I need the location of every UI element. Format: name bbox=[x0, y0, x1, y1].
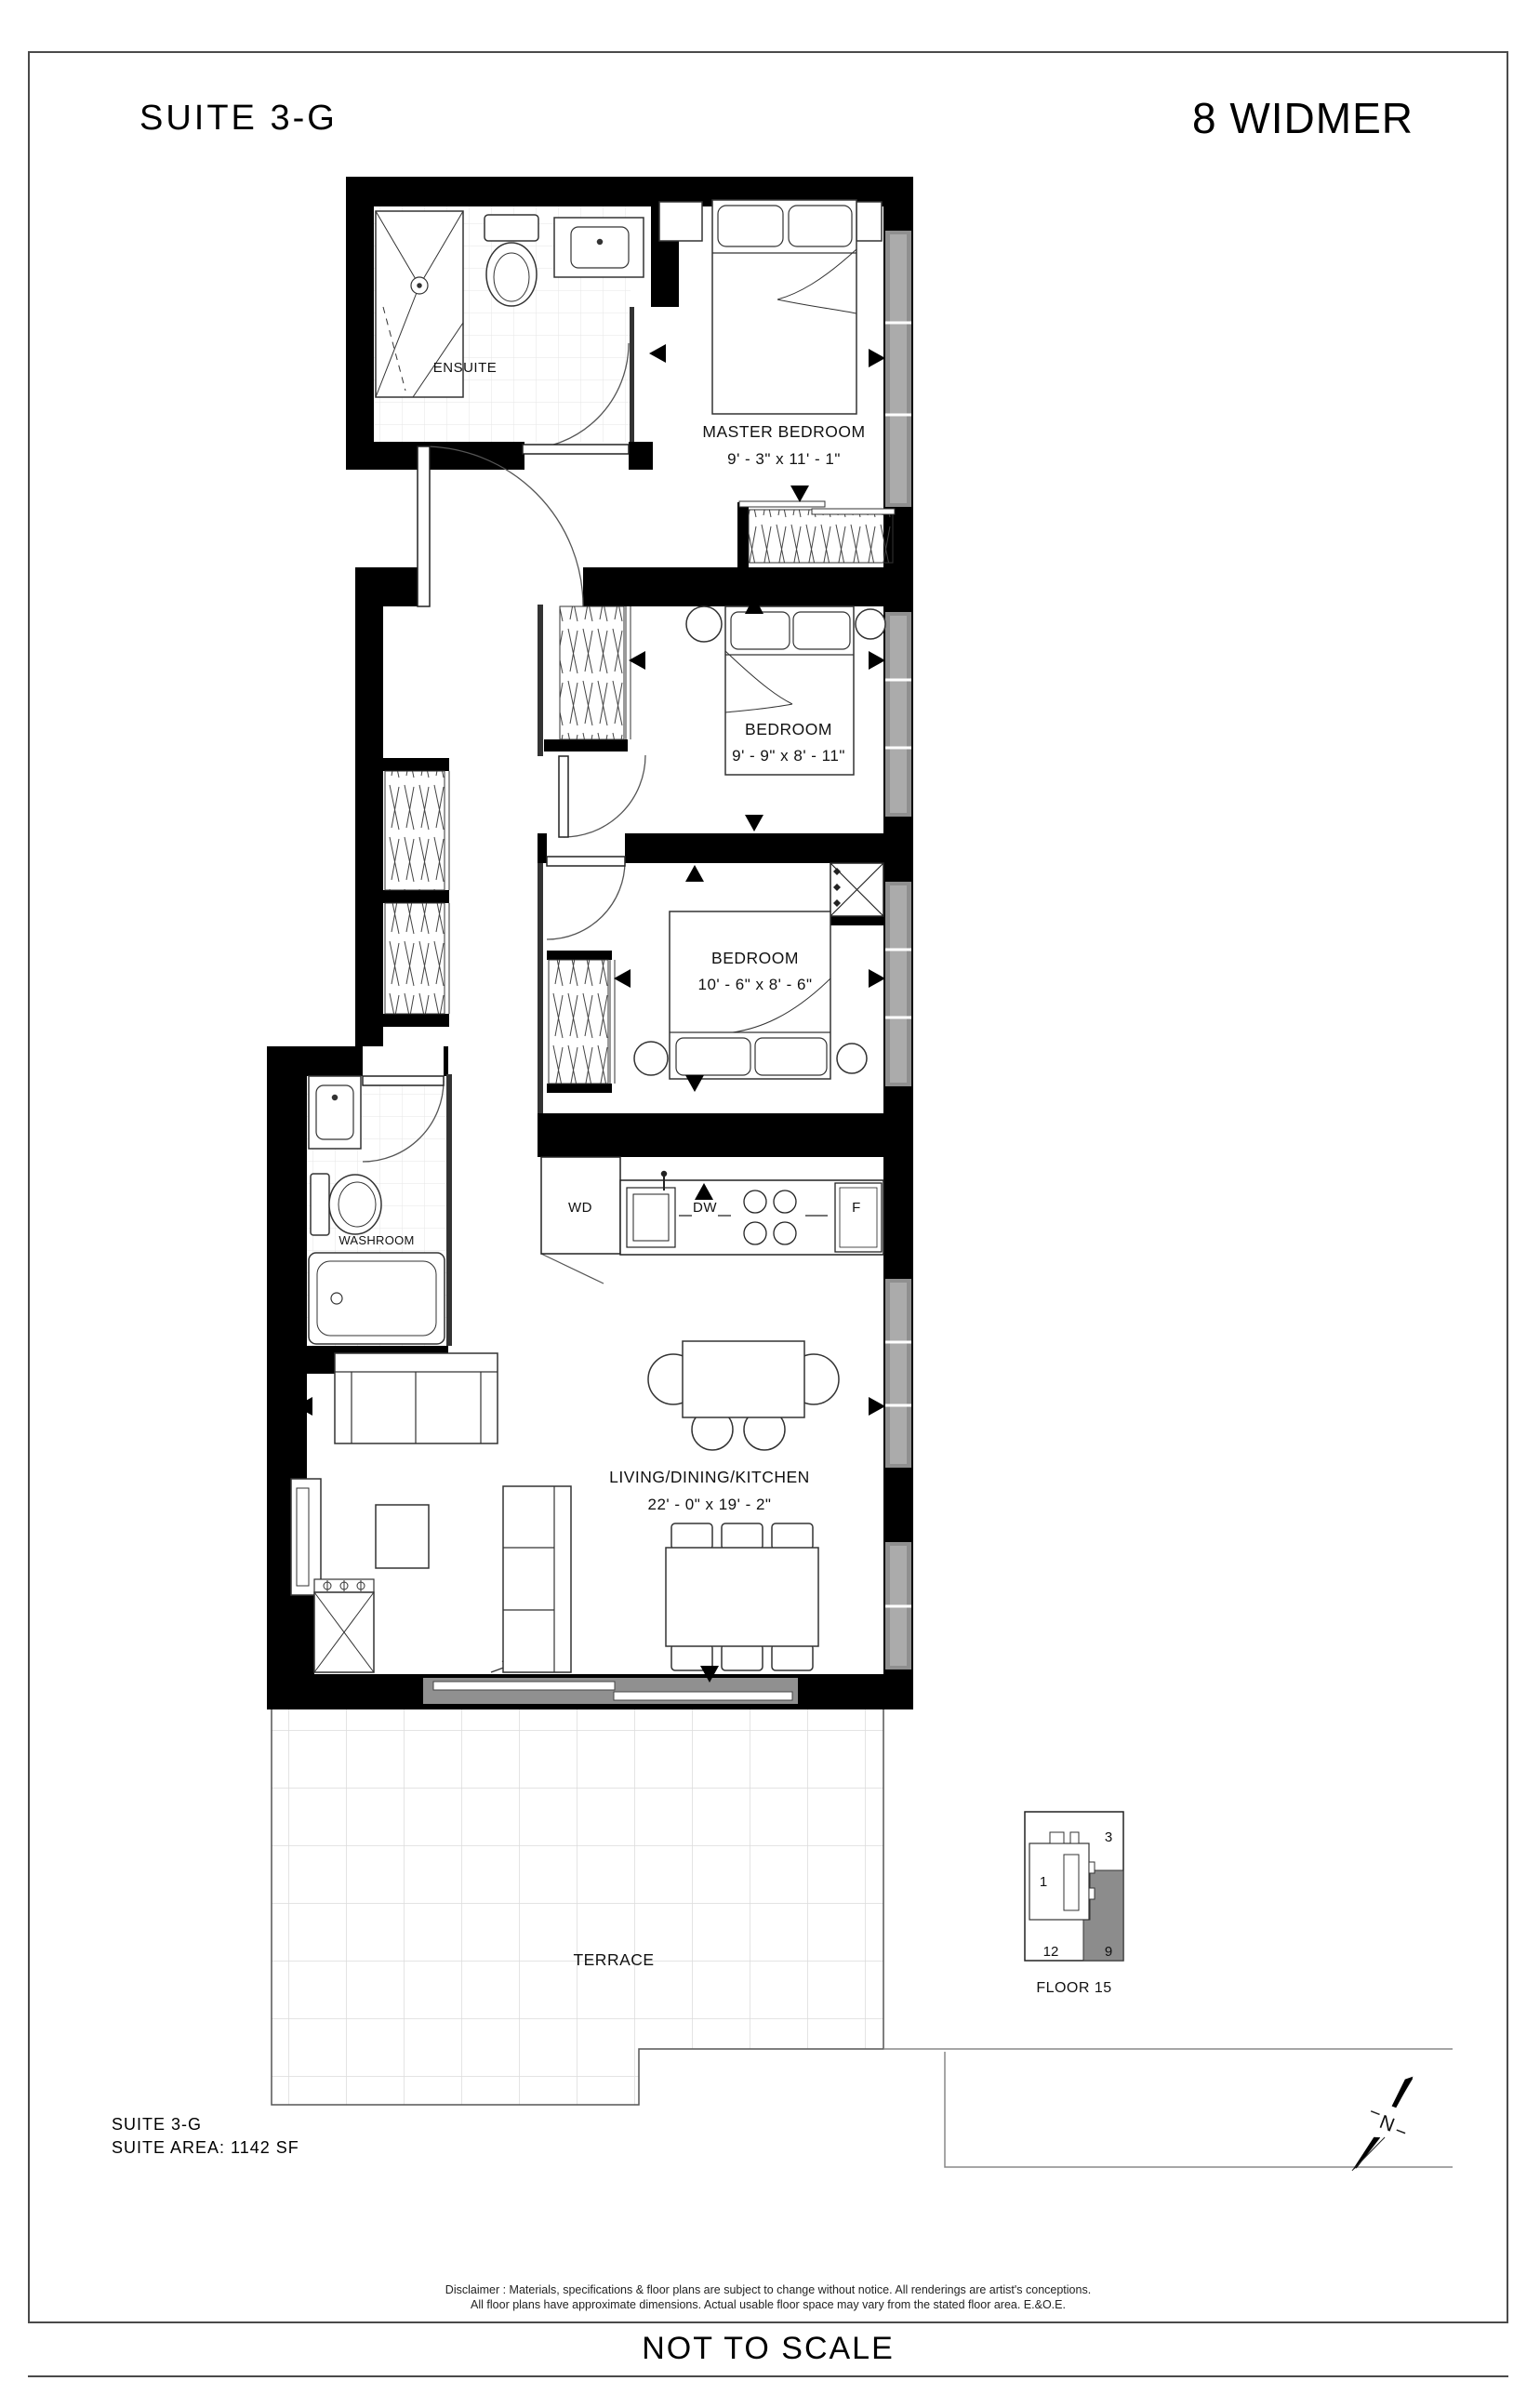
marker-right bbox=[869, 651, 885, 670]
disclaimer-line-1: Disclaimer : Materials, specifications &… bbox=[26, 2282, 1510, 2297]
dining-chair bbox=[722, 1523, 763, 1550]
not-to-scale-label: NOT TO SCALE bbox=[26, 2331, 1510, 2367]
marker-left bbox=[649, 344, 666, 363]
thinwall-ensuite-east bbox=[630, 307, 634, 442]
hvac-unit bbox=[314, 1579, 374, 1672]
marker-down bbox=[685, 1075, 704, 1092]
nightstand-round bbox=[837, 1044, 867, 1073]
thinwall-hall-bed3 bbox=[538, 863, 543, 1113]
keyplan-unit-1: 1 bbox=[1040, 1874, 1047, 1890]
bedroom3-bed bbox=[670, 911, 830, 1079]
ensuite-label: ENSUITE bbox=[433, 360, 498, 376]
terrace-deck bbox=[272, 1704, 883, 2105]
closet-cap-2 bbox=[383, 890, 449, 903]
bedroom3-door bbox=[547, 857, 625, 939]
marker-left bbox=[614, 969, 631, 988]
keyplan-floor-label: FLOOR 15 bbox=[1036, 1980, 1111, 1996]
terrace: TERRACE bbox=[272, 1704, 1453, 2167]
dining-chair bbox=[772, 1644, 813, 1670]
suite-info-area: SUITE AREA: 1142 SF bbox=[112, 2136, 299, 2160]
bottom-rule bbox=[28, 2375, 1508, 2377]
nightstand bbox=[659, 202, 702, 241]
bedroom3-closet bbox=[549, 960, 615, 1084]
washroom-toilet bbox=[311, 1174, 381, 1235]
ensuite-toilet bbox=[485, 215, 538, 306]
washer-dryer-label: WD bbox=[568, 1200, 592, 1216]
coffee-table bbox=[376, 1505, 429, 1568]
entry-door bbox=[418, 446, 583, 606]
thinwall-washroom-east bbox=[446, 1074, 452, 1346]
bedroom2-door bbox=[559, 755, 645, 837]
bedroom2-closet bbox=[560, 606, 631, 739]
nightstand-round bbox=[686, 606, 722, 642]
floorplan-drawing: TERRACE bbox=[0, 0, 1540, 2381]
bedroom2-label: BEDROOM bbox=[745, 720, 832, 738]
dining-chair bbox=[671, 1523, 712, 1550]
living-dims: 22' - 0" x 19' - 2" bbox=[648, 1496, 772, 1513]
living-label: LIVING/DINING/KITCHEN bbox=[609, 1468, 810, 1486]
wall-entry-right-jamb bbox=[583, 567, 606, 606]
wall-ensuite-door-jamb bbox=[629, 442, 653, 470]
washroom-label: WASHROOM bbox=[339, 1233, 414, 1247]
tv-console bbox=[291, 1479, 321, 1595]
window-living-1 bbox=[885, 1279, 911, 1468]
window-living-2 bbox=[885, 1542, 911, 1669]
disclaimer-line-2: All floor plans have approximate dimensi… bbox=[26, 2297, 1510, 2312]
north-arrow: N bbox=[1348, 2067, 1425, 2184]
fridge bbox=[835, 1183, 882, 1252]
keyplan-unit-12: 12 bbox=[1043, 1944, 1059, 1960]
sofa-vertical bbox=[503, 1486, 571, 1672]
master-bedroom-label: MASTER BEDROOM bbox=[702, 422, 865, 441]
bed3-closet-cap-top bbox=[547, 951, 612, 960]
dining-chair bbox=[772, 1523, 813, 1550]
thinwall-hall-bed2-upper bbox=[538, 605, 543, 756]
marker-left bbox=[629, 651, 645, 670]
marker-right bbox=[869, 1397, 885, 1416]
dining-chair bbox=[722, 1644, 763, 1670]
ensuite-sink bbox=[554, 218, 644, 277]
floorplan-page: SUITE 3-G 8 WIDMER TERRACE bbox=[0, 0, 1540, 2381]
breakfast-table bbox=[648, 1341, 839, 1450]
closet-cap-1 bbox=[383, 758, 449, 771]
bedroom3-furniture bbox=[634, 911, 867, 1079]
keyplan-unit-3: 3 bbox=[1105, 1829, 1112, 1845]
master-bedroom-furniture bbox=[659, 200, 882, 414]
master-bed bbox=[712, 200, 856, 414]
wall-bed2-bed3 bbox=[625, 833, 913, 863]
wall-ensuite-west bbox=[346, 177, 374, 470]
wall-washroom-north-right bbox=[444, 1046, 448, 1076]
north-label: N bbox=[1376, 2111, 1397, 2136]
dining-set bbox=[666, 1523, 818, 1670]
bedroom3-label: BEDROOM bbox=[711, 949, 799, 967]
wall-bed2-bed3-left bbox=[538, 833, 547, 863]
keyplan: 3 1 12 9 FLOOR 15 bbox=[1025, 1812, 1123, 1996]
wall-master-bed2-divider bbox=[604, 567, 913, 606]
master-closet-jamb bbox=[737, 502, 749, 567]
bedroom2-dims: 9' - 9" x 8' - 11" bbox=[732, 747, 845, 765]
nightstand bbox=[856, 202, 882, 241]
marker-up bbox=[685, 865, 704, 882]
marker-down bbox=[745, 815, 763, 831]
wall-west-lower bbox=[267, 1046, 307, 1704]
bedroom3-dims: 10' - 6" x 8' - 6" bbox=[698, 976, 813, 993]
washroom-sink bbox=[309, 1076, 361, 1149]
wall-hall-west bbox=[355, 605, 383, 1046]
closet-cap-3 bbox=[383, 1014, 449, 1027]
marker-right bbox=[869, 969, 885, 988]
master-closet bbox=[739, 501, 895, 563]
marker-down bbox=[790, 486, 809, 502]
window-bedroom3 bbox=[885, 882, 911, 1086]
bed2-closet-cap bbox=[544, 739, 628, 752]
wall-kitchen-north bbox=[538, 1113, 913, 1157]
bed3-closet-cap-bottom bbox=[547, 1084, 612, 1093]
terrace-label: TERRACE bbox=[573, 1950, 654, 1969]
shaft-cap bbox=[830, 916, 883, 925]
window-master bbox=[885, 231, 911, 507]
suite-info-block: SUITE 3-G SUITE AREA: 1142 SF bbox=[112, 2113, 299, 2160]
sofa-horizontal bbox=[335, 1353, 498, 1443]
fridge-label: F bbox=[852, 1200, 861, 1216]
hall-closet-1 bbox=[385, 771, 449, 890]
master-bedroom-dims: 9' - 3" x 11' - 1" bbox=[727, 450, 841, 468]
mechanical-shaft bbox=[830, 863, 883, 916]
dishwasher-label: DW bbox=[693, 1200, 717, 1216]
kitchen-corner-line bbox=[541, 1254, 604, 1284]
keyplan-unit-9: 9 bbox=[1105, 1944, 1112, 1960]
suite-info-name: SUITE 3-G bbox=[112, 2113, 299, 2136]
bathtub bbox=[309, 1253, 445, 1344]
window-bedroom2 bbox=[885, 612, 911, 817]
nightstand-round bbox=[856, 609, 885, 639]
disclaimer: Disclaimer : Materials, specifications &… bbox=[26, 2282, 1510, 2312]
nightstand-round bbox=[634, 1042, 668, 1075]
dining-table bbox=[666, 1548, 818, 1646]
marker-right bbox=[869, 349, 885, 367]
hall-closet-2 bbox=[385, 903, 449, 1014]
